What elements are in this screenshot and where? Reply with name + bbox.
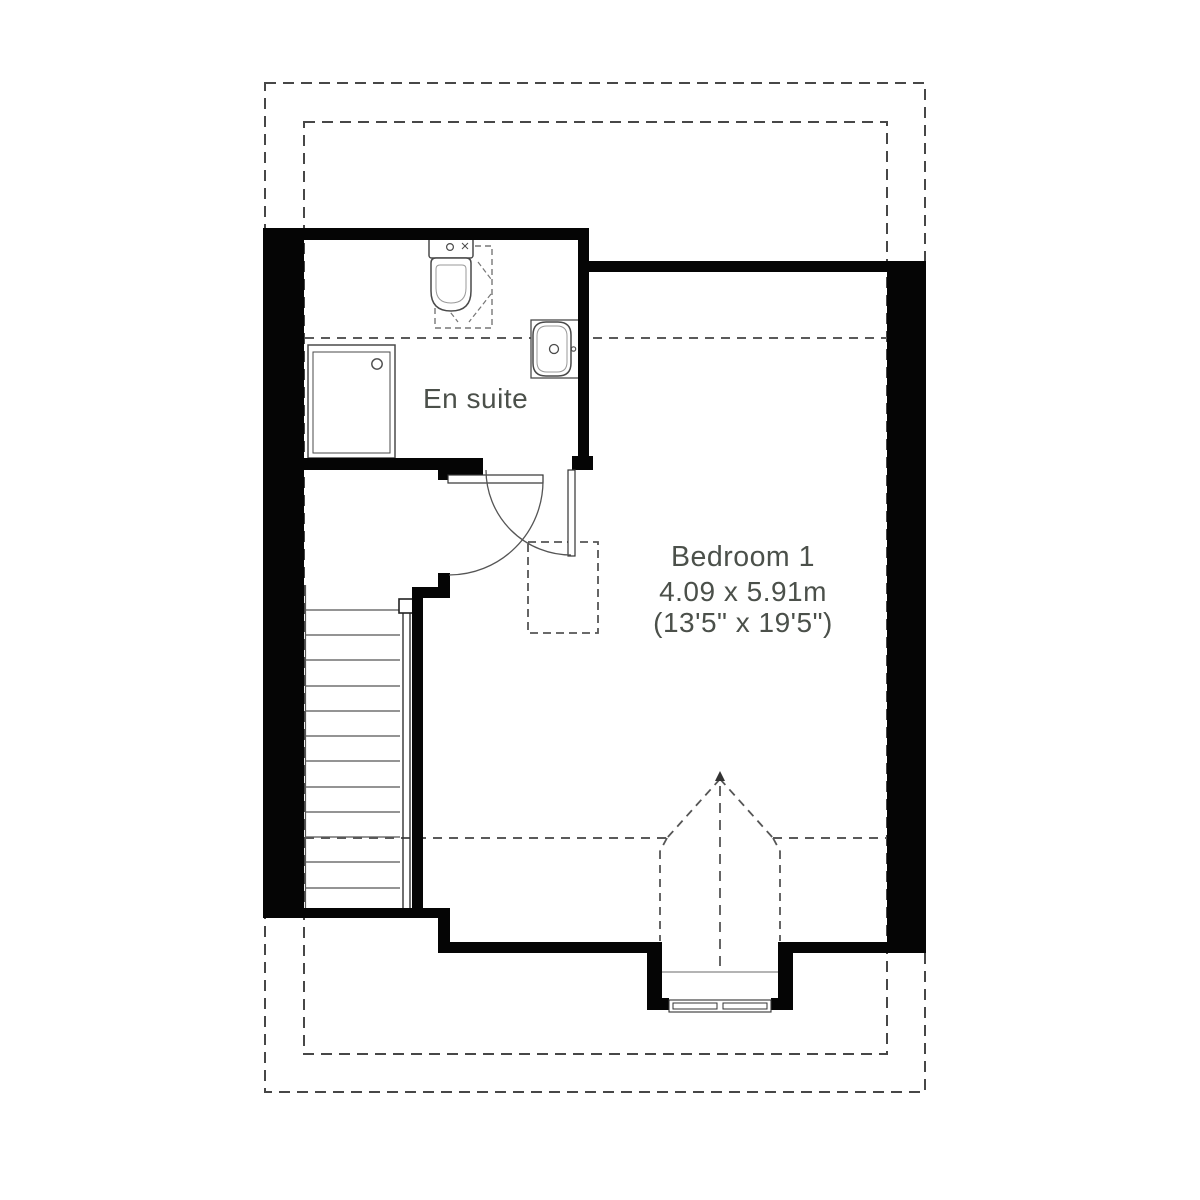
bedroom-door-leaf xyxy=(568,470,575,556)
bedroom-label: Bedroom 1 xyxy=(671,541,815,573)
wall-bedroom-bottom-left xyxy=(438,942,662,953)
wall-door-jamb-bedroom xyxy=(572,456,593,470)
stair-newel-post xyxy=(399,599,414,613)
window-pane xyxy=(723,1003,767,1009)
floorplan-svg: En suite Bedroom 1 4.09 x 5.91m (13'5" x… xyxy=(0,0,1200,1200)
void-dashed-box xyxy=(528,542,598,633)
floorplan-canvas: En suite Bedroom 1 4.09 x 5.91m (13'5" x… xyxy=(0,0,1200,1200)
wall-bedroom-top xyxy=(578,261,887,272)
ensuite-door-leaf xyxy=(448,475,543,483)
wall-bay-bottom-left xyxy=(647,998,669,1010)
bay-window xyxy=(662,972,778,1012)
wall-right xyxy=(887,261,926,953)
bedroom-size-imperial: (13'5" x 19'5") xyxy=(653,607,833,638)
bedroom-size-metric: 4.09 x 5.91m xyxy=(659,576,827,607)
ensuite-label: En suite xyxy=(423,383,528,414)
window-pane xyxy=(673,1003,717,1009)
wall-bay-right xyxy=(778,942,793,1010)
wall-landing-bottom xyxy=(263,908,450,918)
wall-ensuite-bottom xyxy=(304,458,483,470)
shower xyxy=(308,345,395,458)
ridge-arrow-icon xyxy=(715,771,725,781)
toilet xyxy=(429,238,492,328)
wall-bedroom-bottom-right xyxy=(793,942,887,953)
wall-landing-step xyxy=(412,587,450,598)
staircase xyxy=(306,585,415,908)
sink xyxy=(531,320,582,378)
stair-treads xyxy=(306,610,400,888)
dormer-bay-outline xyxy=(660,771,780,970)
labels: En suite Bedroom 1 4.09 x 5.91m (13'5" x… xyxy=(423,383,833,638)
wall-ensuite-top xyxy=(263,228,589,240)
wall-landing xyxy=(412,598,423,918)
wall-left xyxy=(263,228,304,918)
